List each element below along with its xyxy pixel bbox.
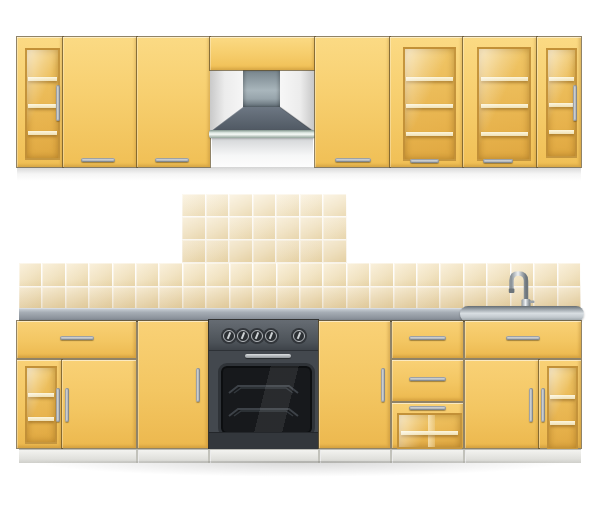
tile bbox=[66, 263, 89, 287]
tile bbox=[300, 240, 324, 263]
tile bbox=[206, 263, 229, 287]
glass-door-panel bbox=[403, 47, 456, 161]
tile bbox=[159, 287, 182, 311]
tile bbox=[370, 287, 393, 311]
shelf bbox=[550, 421, 575, 425]
tile bbox=[89, 287, 112, 311]
wall-cabinet-solid-1 bbox=[63, 37, 137, 167]
door-handle bbox=[65, 388, 69, 422]
tile bbox=[417, 263, 440, 287]
door-handle bbox=[56, 85, 60, 121]
door-handle bbox=[56, 388, 60, 422]
tile bbox=[347, 263, 370, 287]
tile bbox=[136, 287, 159, 311]
glass-drawer-front bbox=[392, 403, 463, 448]
drawer-front bbox=[465, 321, 581, 358]
shelf bbox=[549, 130, 574, 134]
tile bbox=[300, 217, 324, 240]
tile bbox=[277, 287, 300, 311]
tile bbox=[183, 287, 206, 311]
glass-mullion bbox=[428, 415, 435, 447]
shelf bbox=[481, 132, 528, 136]
wall-cabinet-solid-2 bbox=[137, 37, 210, 167]
door-handle bbox=[483, 159, 513, 163]
oven bbox=[209, 320, 318, 449]
tile bbox=[206, 194, 230, 217]
wall-cabinet-glass-right bbox=[537, 37, 581, 167]
tile bbox=[136, 263, 159, 287]
oven-bottom-trim bbox=[209, 432, 318, 449]
door-handle bbox=[196, 368, 200, 402]
base-tall-door-2 bbox=[319, 321, 390, 448]
hood-reflection bbox=[212, 138, 313, 170]
tile bbox=[182, 240, 206, 263]
door-handle bbox=[541, 388, 545, 422]
shelf bbox=[406, 132, 452, 136]
under-cabinet-shadow bbox=[17, 167, 581, 181]
base-tall-door-1 bbox=[138, 321, 208, 448]
door-handle bbox=[155, 158, 189, 162]
tile bbox=[206, 217, 230, 240]
door-handle bbox=[81, 158, 115, 162]
wall-cabinet-glass-left bbox=[17, 37, 63, 167]
oven-rack-lines bbox=[221, 366, 306, 428]
tile bbox=[206, 240, 230, 263]
tile bbox=[253, 240, 277, 263]
backsplash-raised-tiles bbox=[182, 194, 347, 263]
oven-door-window bbox=[218, 363, 315, 437]
tile bbox=[300, 287, 323, 311]
drawer-handle bbox=[409, 336, 446, 340]
oven-door-handle bbox=[245, 354, 291, 358]
drawer-front bbox=[392, 360, 463, 401]
base-solid-door bbox=[62, 360, 136, 448]
drawer-front bbox=[17, 321, 136, 358]
hood-pyramid bbox=[209, 106, 315, 132]
oven-control-panel bbox=[209, 320, 318, 351]
tile bbox=[323, 240, 347, 263]
tile bbox=[229, 240, 253, 263]
tile bbox=[417, 287, 440, 311]
shelf bbox=[550, 395, 575, 399]
tile bbox=[276, 240, 300, 263]
tile bbox=[42, 263, 65, 287]
tile bbox=[253, 263, 276, 287]
door-handle bbox=[381, 368, 385, 402]
sink-rim bbox=[460, 306, 584, 322]
tile bbox=[277, 263, 300, 287]
tile bbox=[347, 287, 370, 311]
drawer-handle bbox=[409, 406, 446, 410]
oven-knob bbox=[251, 330, 263, 342]
base-glass-door bbox=[539, 360, 581, 448]
glass-door-panel bbox=[547, 366, 578, 450]
glass-door-panel bbox=[25, 48, 60, 160]
door-handle bbox=[573, 85, 577, 121]
oven-knob bbox=[265, 330, 277, 342]
drawer-handle bbox=[409, 377, 446, 381]
tile bbox=[183, 263, 206, 287]
shelf bbox=[481, 104, 528, 108]
shelf bbox=[28, 77, 57, 81]
glass-door-panel bbox=[25, 366, 57, 444]
drawer-handle bbox=[60, 336, 94, 340]
tile bbox=[300, 263, 323, 287]
tile bbox=[300, 194, 324, 217]
tile bbox=[323, 263, 346, 287]
shelf bbox=[481, 77, 528, 81]
shelf bbox=[549, 103, 574, 107]
shelf bbox=[406, 104, 452, 108]
shelf bbox=[28, 417, 54, 421]
glass-door-panel bbox=[477, 47, 531, 161]
wall-cabinet-glass-2 bbox=[463, 37, 537, 167]
tile bbox=[253, 287, 276, 311]
tile bbox=[370, 263, 393, 287]
door-handle bbox=[529, 388, 533, 422]
tile bbox=[464, 263, 487, 287]
tile bbox=[394, 263, 417, 287]
tile bbox=[323, 287, 346, 311]
tile bbox=[42, 287, 65, 311]
tile bbox=[440, 263, 463, 287]
oven-knob bbox=[293, 330, 305, 342]
tile bbox=[229, 194, 253, 217]
door-handle bbox=[335, 158, 371, 162]
tile bbox=[253, 194, 277, 217]
wall-cabinet-glass-1 bbox=[390, 37, 463, 167]
tile bbox=[230, 287, 253, 311]
tile bbox=[19, 263, 42, 287]
oven-knob bbox=[223, 330, 235, 342]
tile bbox=[66, 287, 89, 311]
tile bbox=[394, 287, 417, 311]
oven-knob bbox=[237, 330, 249, 342]
tile bbox=[558, 263, 581, 287]
tile bbox=[276, 217, 300, 240]
tile bbox=[323, 217, 347, 240]
tile bbox=[253, 217, 277, 240]
tile bbox=[159, 263, 182, 287]
hood-duct bbox=[243, 70, 280, 107]
tile bbox=[113, 287, 136, 311]
tile bbox=[230, 263, 253, 287]
shelf bbox=[549, 77, 574, 81]
tile bbox=[323, 194, 347, 217]
backsplash-band-tiles bbox=[19, 263, 581, 310]
door-handle bbox=[410, 159, 439, 163]
tile bbox=[19, 287, 42, 311]
tile bbox=[229, 217, 253, 240]
base-glass-door bbox=[17, 360, 62, 448]
tile bbox=[182, 194, 206, 217]
tile bbox=[113, 263, 136, 287]
hood-top-panel bbox=[210, 37, 315, 70]
shelf bbox=[28, 393, 54, 397]
tile bbox=[276, 194, 300, 217]
tile bbox=[206, 287, 229, 311]
shelf bbox=[28, 131, 57, 135]
hood-base-edge bbox=[209, 130, 315, 138]
tile bbox=[440, 287, 463, 311]
shelf bbox=[401, 431, 458, 435]
shelf bbox=[406, 77, 452, 81]
kitchen-illustration bbox=[0, 0, 600, 509]
floor-shadow bbox=[30, 461, 570, 477]
glass-drawer-panel bbox=[397, 413, 462, 449]
wall-cabinet-solid-3 bbox=[315, 37, 390, 167]
base-solid-door bbox=[465, 360, 539, 448]
drawer-handle bbox=[506, 336, 540, 340]
tile bbox=[182, 217, 206, 240]
tile bbox=[89, 263, 112, 287]
drawer-front bbox=[392, 321, 463, 358]
shelf bbox=[28, 104, 57, 108]
